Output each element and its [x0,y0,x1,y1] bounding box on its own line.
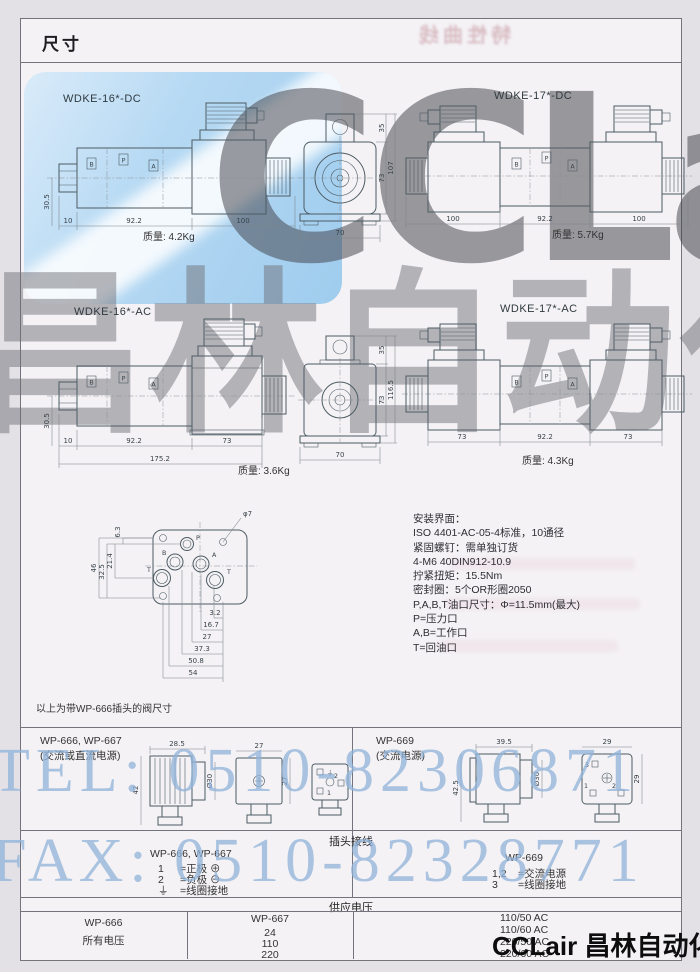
svg-text:37.3: 37.3 [194,645,210,653]
svg-text:B: B [89,162,93,169]
svg-text:P: P [122,158,126,165]
weight-wdke17ac: 质量: 4.3Kg [522,452,574,467]
info-line: 拧紧扭矩：15.5Nm [413,569,678,583]
svg-text:27: 27 [203,633,212,641]
showthrough-text: 特性曲线 [415,19,511,48]
svg-text:35: 35 [378,346,386,355]
svg-text:175.2: 175.2 [150,455,170,463]
svg-text:P: P [545,374,549,381]
svg-text:73: 73 [624,433,633,441]
svg-text:A: A [151,382,156,389]
voltage-col1-value: 所有电压 [20,933,187,948]
svg-text:100: 100 [236,217,249,225]
drawing-dc-end-view: 70 35 73 107 [296,98,401,248]
section-divider [20,897,682,898]
svg-text:A: A [151,164,156,171]
info-line: T=回油口 [413,641,678,655]
svg-text:73: 73 [458,433,467,441]
datasheet-page: { "page": { "header_title": "尺寸", "foote… [0,0,700,972]
svg-text:100: 100 [446,215,459,223]
svg-text:A: A [570,164,575,171]
svg-text:54: 54 [189,669,198,677]
svg-text:T: T [146,567,151,574]
svg-text:116.5: 116.5 [387,380,395,400]
svg-text:73: 73 [223,437,232,445]
svg-text:φ7: φ7 [243,510,252,518]
info-line: P=压力口 [413,612,678,626]
drawing-mounting-face: P B A T T φ7 46 32.5 21.4 6.3 3.2 16.7 2… [65,502,315,707]
voltage-col2-value: 220 [187,949,353,961]
weight-wdke17dc: 质量: 5.7Kg [552,226,604,241]
svg-text:73: 73 [378,174,386,183]
svg-text:B: B [162,550,166,557]
info-line: 密封圈：5个OR形圈2050 [413,583,678,597]
svg-text:35: 35 [378,124,386,133]
svg-text:6.3: 6.3 [114,526,122,537]
svg-text:30.5: 30.5 [43,194,51,210]
plug-note: 以上为带WP-666插头的阀尺寸 [36,700,172,715]
svg-text:16.7: 16.7 [203,621,219,629]
voltage-col1-header: WP-666 [20,917,187,929]
svg-text:70: 70 [336,451,345,459]
svg-text:46: 46 [90,563,98,572]
info-line: 紧固螺钉：需单独订货 [413,541,678,555]
installation-info: 安装界面： ISO 4401-AC-05-4标准，10通径 紧固螺钉：需单独订货… [413,512,678,655]
svg-text:92.2: 92.2 [537,433,553,441]
drawing-wdke16dc-side: B P A 10 92.2 100 30.5 [45,100,310,240]
svg-text:32.5: 32.5 [98,564,106,580]
footer-brand: CCLair 昌林自动化 [492,926,700,963]
drawing-wdke17ac-side: B P A 73 92.2 73 [400,314,695,454]
svg-text:T: T [226,569,231,576]
svg-text:107: 107 [387,161,395,174]
table-divider [353,911,354,959]
info-line: 4-M6 40DIN912-10.9 [413,555,678,569]
svg-text:3.2: 3.2 [209,609,220,617]
info-line: ISO 4401-AC-05-4标准，10通径 [413,526,678,540]
info-line: A,B=工作口 [413,626,678,640]
drawing-wdke17dc-side: B P A 100 92.2 100 [400,96,695,236]
svg-text:A: A [212,552,217,559]
svg-text:B: B [514,162,518,169]
svg-text:A: A [570,382,575,389]
info-line: P,A,B,T油口尺寸：Φ=11.5mm(最大) [413,598,678,612]
svg-text:P: P [196,535,200,542]
svg-text:B: B [514,380,518,387]
section-divider [20,727,682,728]
svg-text:10: 10 [64,217,73,225]
svg-text:92.2: 92.2 [537,215,553,223]
table-top-rule [20,911,682,912]
watermark-tel: TEL: 0510-82306871 [0,736,639,807]
drawing-wdke16ac-side: B P A 10 92.2 73 175.2 30.5 [45,318,310,478]
valve-label-wdke16ac: WDKE-16*-AC [74,306,152,318]
svg-text:10: 10 [64,437,73,445]
svg-text:30.5: 30.5 [43,413,51,429]
svg-text:B: B [89,380,93,387]
watermark-fax: FAX: 0510-82328771 [0,826,645,897]
voltage-col2-header: WP-667 [187,913,353,925]
weight-wdke16dc: 质量: 4.2Kg [143,228,195,243]
svg-text:P: P [545,156,549,163]
page-title: 尺寸 [42,30,82,55]
svg-text:50.8: 50.8 [188,657,204,665]
svg-text:92.2: 92.2 [126,217,142,225]
svg-text:70: 70 [336,229,345,237]
svg-text:73: 73 [378,396,386,405]
svg-text:P: P [122,376,126,383]
header-rule [20,62,682,63]
svg-text:100: 100 [632,215,645,223]
drawing-ac-end-view: 70 35 73 116.5 [296,320,401,470]
voltage-col3-value: 110/50 AC [500,912,548,924]
weight-wdke16ac: 质量: 3.6Kg [238,462,290,477]
svg-text:21.4: 21.4 [106,553,114,569]
info-line: 安装界面： [413,512,678,526]
svg-text:92.2: 92.2 [126,437,142,445]
